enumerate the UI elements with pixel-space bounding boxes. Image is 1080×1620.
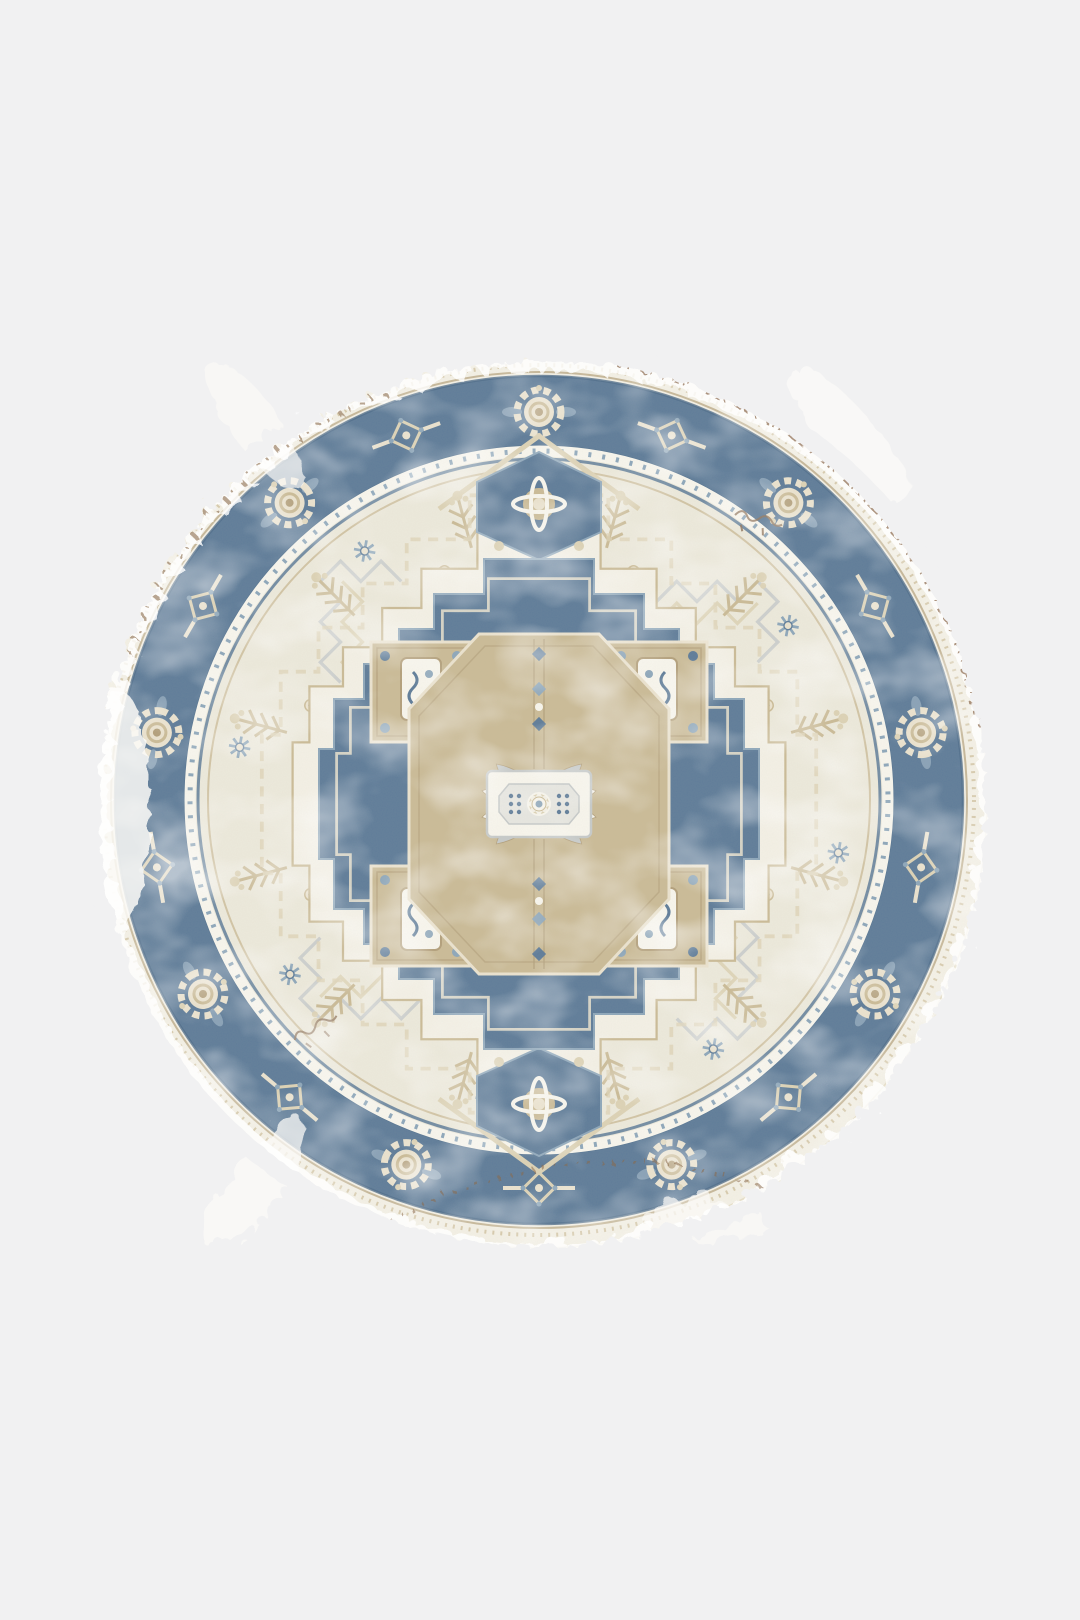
round-rug-photo <box>0 0 1080 1620</box>
distress-overlay <box>87 345 991 1258</box>
rug-product-image <box>0 0 1080 1620</box>
product-photo-stage <box>0 0 1080 1620</box>
